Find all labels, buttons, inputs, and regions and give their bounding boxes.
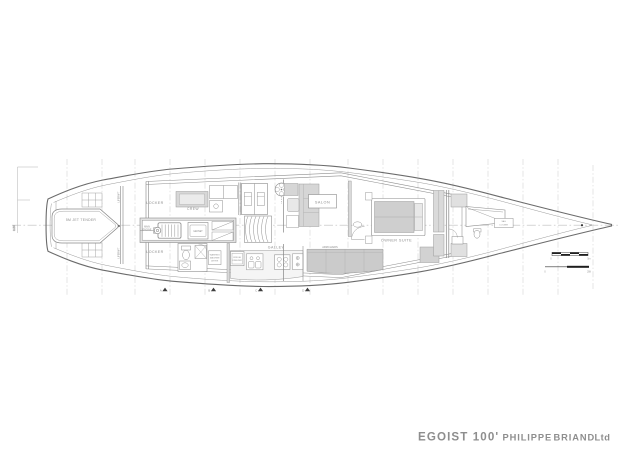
tender-bow-dot [118, 225, 120, 227]
genset-label: GENSET [193, 231, 203, 233]
salon-table: SALON [309, 195, 337, 209]
fore-toilet [474, 230, 480, 238]
fridge-label-1: FRIDGE [233, 257, 241, 259]
crew-label: CREW [187, 207, 199, 211]
dimension-label: 3.50 [12, 225, 16, 231]
designer-first-name: PHILIPPE [503, 433, 553, 443]
scale-feet-end: 20ft [587, 271, 591, 274]
scale-bars: 0 5m 0 20ft [544, 252, 591, 273]
title-block: EGOIST 100' PHILIPPE BRIAND Ltd [418, 431, 610, 444]
boat-name: EGOIST 100' [418, 431, 499, 444]
toilet [183, 250, 190, 260]
engine-label-line2: ENGINE [143, 230, 152, 232]
wardrobes [434, 191, 445, 257]
salon-sideboard [287, 216, 299, 228]
nightstand-bottom [366, 236, 373, 244]
section-marker-a: A [160, 288, 162, 292]
locker-top-label: LOCKER [146, 201, 163, 205]
engine-room: MAIN ENGINE GENSET [140, 218, 236, 243]
designer-last-name: BRIAND [554, 433, 596, 443]
washing-label-2: MACHINE [210, 256, 220, 259]
drawing-sheet: 3.50 5M JET TENDER LIFERAFT LIFERAFT [0, 0, 640, 453]
top-cabinets [210, 186, 238, 213]
yacht-general-arrangement-plan: 3.50 5M JET TENDER LIFERAFT LIFERAFT [0, 0, 640, 453]
washing-machine-box: WASHING MACHINE DRYER [209, 251, 222, 265]
galley: FRIDGE FREEZER GALLEY [227, 244, 303, 283]
armchairs-label: ARMCHAIRS [322, 245, 338, 249]
sink-unit [247, 254, 264, 270]
washing-label-3: DRYER [211, 260, 219, 262]
section-markers: A B C D [160, 288, 310, 293]
scale-meters-start: 0 [550, 259, 552, 261]
bow-fitting-dot [581, 224, 583, 226]
washbasin-cabinet [180, 261, 191, 270]
section-marker-c: C [255, 288, 258, 292]
main-engine [154, 223, 181, 238]
liferaft-bottom-label: LIFERAFT [117, 247, 120, 258]
galley-label: GALLEY [268, 245, 285, 249]
locker-bottom-label: LOCKER [146, 250, 163, 254]
fridge-label-2: FREEZER [233, 260, 243, 262]
dimension-lines: 3.50 [12, 167, 38, 233]
scale-bar-feet: 0 20ft [544, 266, 591, 274]
companionway-stairs [245, 216, 272, 243]
owner-basin [353, 222, 361, 227]
owner-bed [372, 199, 426, 236]
sail-locker-box: SAIL LOCKER [495, 218, 514, 227]
jet-tender [52, 209, 120, 243]
nightstand-top [366, 193, 373, 201]
jet-tender-label: 5M JET TENDER [66, 218, 97, 222]
transom-hatch-grid-top [82, 193, 102, 207]
fore-cabinet [452, 237, 463, 245]
shower [195, 246, 207, 259]
salon-armchair [288, 199, 300, 212]
galley-aft-wall [227, 244, 230, 283]
liferaft-top-label: LIFERAFT [117, 191, 120, 202]
fridge-box: FRIDGE FREEZER [231, 252, 245, 266]
lower-settee: ARMCHAIRS [307, 245, 383, 274]
fwd-bulkhead [446, 190, 449, 258]
designer-suffix: Ltd [595, 433, 611, 443]
fwd-locker-bottom [451, 244, 467, 257]
section-marker-b: B [208, 288, 210, 292]
section-marker-d: D [302, 288, 305, 292]
stove [275, 255, 291, 270]
transom-hatch-grid-bottom [82, 243, 102, 257]
scale-meters-end: 5m [587, 259, 590, 261]
bathroom [178, 244, 207, 272]
sail-locker-label-2: LOCKER [500, 224, 509, 226]
salon-label: SALON [315, 201, 330, 205]
crew-bunks [242, 184, 268, 215]
owner-suite-label: OWNER SUITE [381, 239, 412, 243]
fwd-locker-top [451, 194, 467, 207]
engine-label-line1: MAIN [144, 225, 150, 228]
salon-cabinet [285, 184, 299, 196]
galley-cabinet [293, 254, 304, 270]
owner-aft-wall [348, 181, 351, 237]
owner-door-arc [352, 227, 365, 240]
washing-label-1: WASHING [210, 253, 220, 256]
scale-bar-meters: 0 5m [550, 252, 590, 260]
scale-feet-start: 0 [544, 272, 546, 274]
toilet-tank [182, 246, 191, 250]
